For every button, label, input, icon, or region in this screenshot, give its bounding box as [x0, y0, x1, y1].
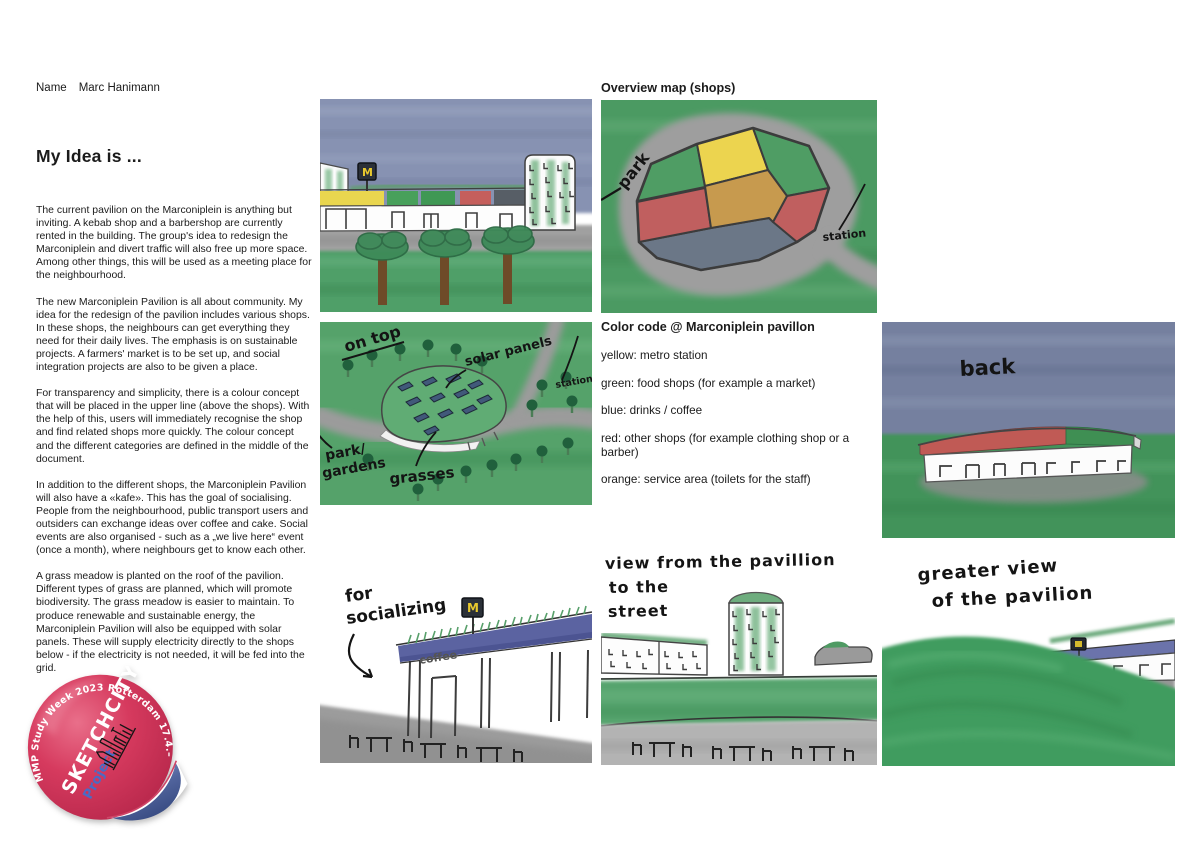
sketch-back-view: back — [882, 322, 1175, 538]
sketch-overview-map: park station — [601, 100, 877, 313]
color-code-section: Color code @ Marconiplein pavillon yello… — [601, 320, 884, 501]
sketch-roof-top-view: on top solar panels station park/ garden… — [320, 322, 592, 505]
overview-map-drawing: park station — [601, 100, 877, 313]
greater-view-drawing: greater view of the pavilion — [882, 553, 1175, 766]
intro-text: The current pavilion on the Marconiplein… — [36, 204, 313, 688]
sketch-street-front-view: M — [320, 99, 592, 312]
metro-sign-letter: M — [467, 601, 479, 615]
sticker-drawing: MMP Study Week 2023 Rotterdam 17.4.–21.4… — [20, 666, 196, 842]
paragraph: In addition to the different shops, the … — [36, 479, 313, 558]
back-view-drawing: back — [882, 322, 1175, 538]
label-for: for — [344, 583, 375, 607]
trees — [356, 226, 534, 305]
street-front-drawing: M — [320, 99, 592, 312]
cafe-drawing: M coffee for socializing — [320, 558, 592, 763]
label-line1: greater view — [917, 555, 1059, 586]
poster-page: NameMarc Hanimann My Idea is ... The cur… — [0, 0, 1191, 842]
color-code-title: Color code @ Marconiplein pavillon — [601, 320, 884, 334]
color-code-entry: green: food shops (for example a market) — [601, 377, 884, 391]
label-line1: view from the pavillion — [605, 550, 836, 573]
back-label: back — [959, 354, 1017, 381]
sketch-view-to-street: view from the pavillion to the street — [601, 545, 877, 765]
page-title: My Idea is ... — [36, 146, 142, 167]
paragraph: The new Marconiplein Pavilion is all abo… — [36, 296, 313, 375]
label-line2: of the pavilion — [931, 583, 1094, 612]
paragraph: The current pavilion on the Marconiplein… — [36, 204, 313, 283]
roof-view-drawing: on top solar panels station park/ garden… — [320, 322, 592, 505]
sketch-cafe-socializing: M coffee for socializing — [320, 558, 592, 765]
name-label: Name — [36, 82, 67, 94]
color-code-entry: blue: drinks / coffee — [601, 404, 884, 418]
name-row: NameMarc Hanimann — [36, 82, 160, 94]
paragraph: For transparency and simplicity, there i… — [36, 387, 313, 466]
color-code-entry: orange: service area (toilets for the st… — [601, 473, 884, 487]
label-line3: street — [608, 601, 669, 621]
sketch-greater-view: greater view of the pavilion — [882, 553, 1175, 768]
color-code-entry: yellow: metro station — [601, 349, 884, 363]
overview-map-heading: Overview map (shops) — [601, 81, 735, 95]
color-code-entry: red: other shops (for example clothing s… — [601, 432, 884, 460]
sketchcity-sticker: MMP Study Week 2023 Rotterdam 17.4.–21.4… — [20, 666, 196, 842]
street-view-drawing: view from the pavillion to the street — [601, 545, 877, 765]
paragraph: A grass meadow is planted on the roof of… — [36, 570, 313, 675]
name-value: Marc Hanimann — [79, 82, 160, 94]
metro-sign-letter: M — [362, 166, 373, 179]
label-line2: to the — [609, 577, 669, 597]
